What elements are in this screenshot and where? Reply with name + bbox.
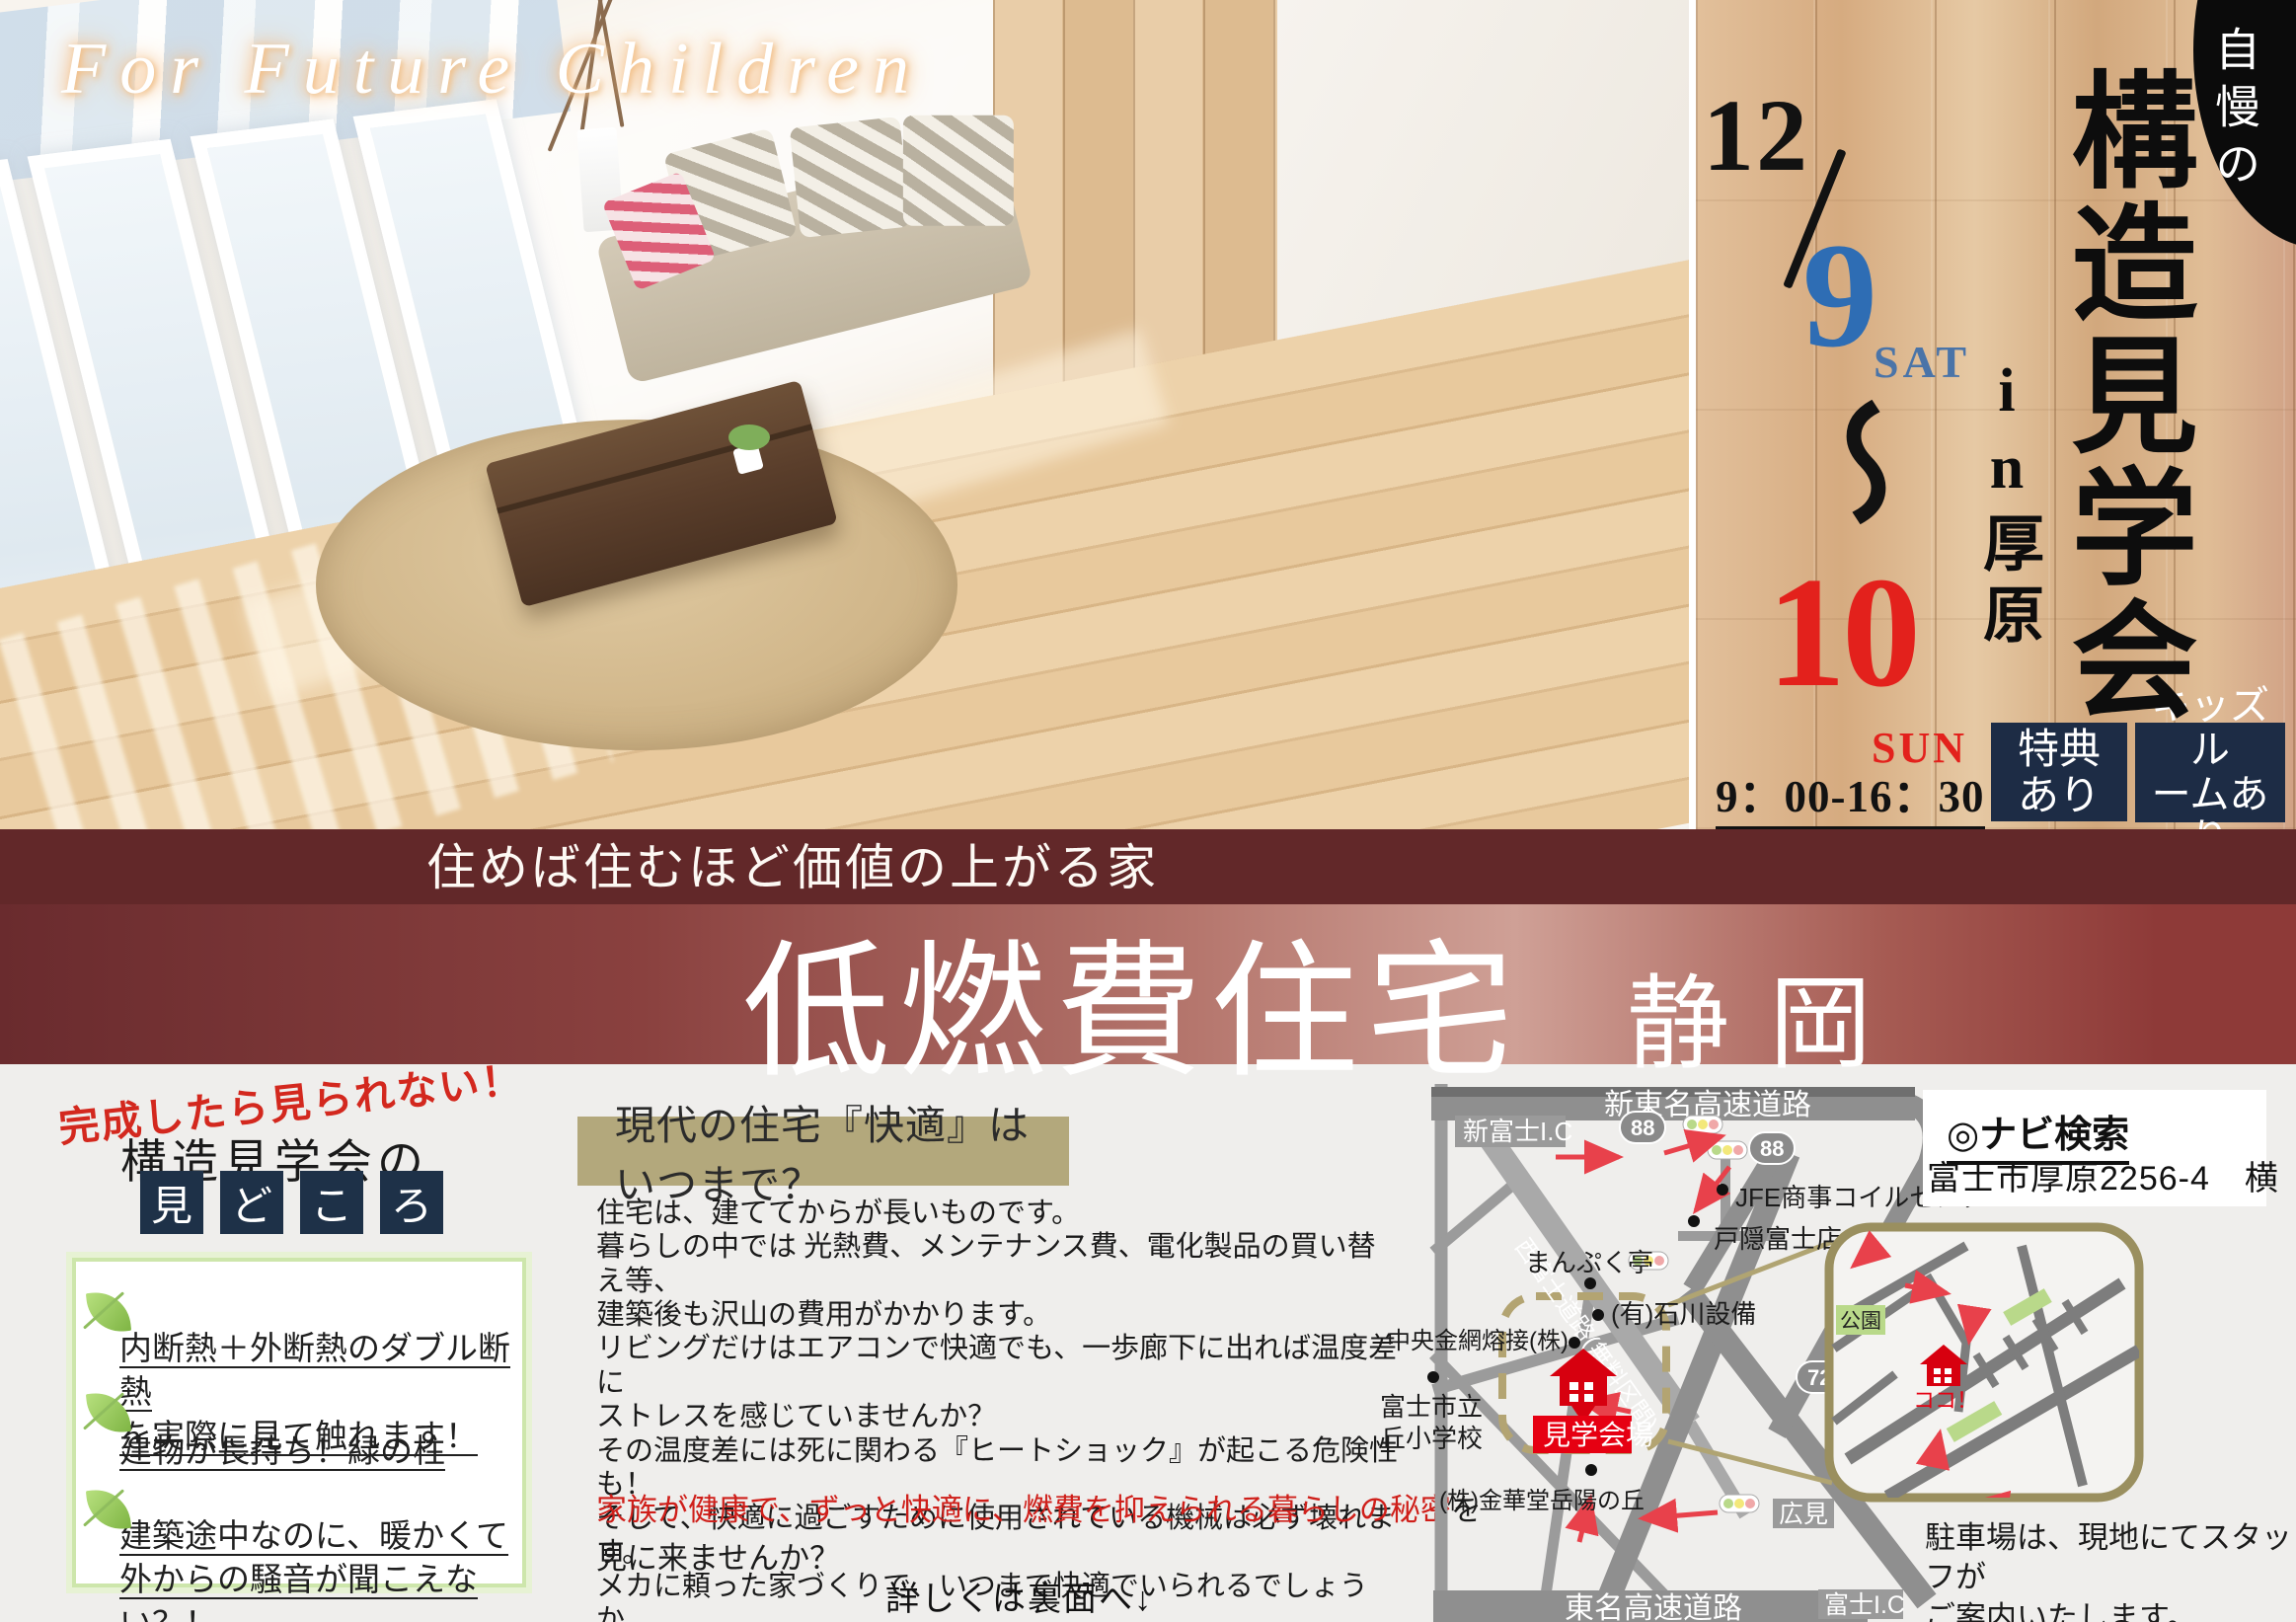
route-88-shield: 88 <box>1631 1116 1654 1140</box>
parking-note: 駐車場は、現地にてスタッフが ご案内いたします。 看板を目印にお越しくださいませ… <box>1925 1518 2296 1622</box>
elementary-label-line1: 富士市立 <box>1380 1392 1483 1422</box>
region-title: 静岡 <box>1627 940 1911 1089</box>
checklist-item: 建築途中なのに、暖かくて 外からの騒音が聞こえない？！ <box>119 1471 522 1622</box>
leaf-icon <box>86 1390 131 1435</box>
midokoro-square: ろ <box>380 1171 443 1234</box>
article-heading: 現代の住宅『快適』はいつまで？ <box>577 1117 1069 1186</box>
koko-label: ココ！ <box>1913 1388 1978 1413</box>
inset-map: 公園 ココ！ <box>1829 1227 2139 1508</box>
event-location-vertical: in厚原 <box>1976 357 2037 703</box>
title-banner: 低燃費住宅 静岡 <box>0 904 2296 1064</box>
midokoro-square: 見 <box>140 1171 203 1234</box>
event-day-10: 10 <box>1767 541 1917 724</box>
living-room-photo: For Future Children <box>0 0 1689 829</box>
checklist-item: 建物が長持ち！緑の柱 <box>119 1386 445 1474</box>
hero-overlay-text: For Future Children <box>61 28 923 112</box>
midokoro-square: こ <box>300 1171 363 1234</box>
leaf-icon <box>86 1487 131 1532</box>
hiromi-label: 広見 <box>1779 1501 1828 1528</box>
event-month: 12 <box>1703 77 1809 194</box>
chuokanaami-label: 中央金網熔接(株) <box>1387 1328 1569 1354</box>
event-time: 9：00-16：30 <box>1716 760 1985 830</box>
article-appeal: 家族が健康で、ずっと快適に、燃費を抑えられる暮らしの秘密を <box>596 1491 1482 1530</box>
route-88-shield: 88 <box>1760 1136 1784 1161</box>
midokoro-square: ど <box>220 1171 283 1234</box>
elementary-label-line2: 丘小学校 <box>1380 1424 1483 1453</box>
tomei-road-label: 東名高速道路 <box>1565 1592 1742 1622</box>
fuji-ic-label: 富士I.C <box>1824 1591 1905 1619</box>
ishikawa-label: (有)石川設備 <box>1611 1299 1756 1329</box>
striped-cushion <box>903 116 1014 226</box>
park-label: 公園 <box>1840 1310 1881 1333</box>
nav-search-address: 富士市厚原2256-4 横 <box>1927 1151 2279 1199</box>
appeal-red-text: 家族が健康で、ずっと快適に、燃費を抑えられる暮らしの秘密 <box>596 1493 1451 1527</box>
midokoro-squares: 見 ど こ ろ <box>140 1171 443 1234</box>
article-appeal-line2: 見に来ませんか？ <box>596 1533 840 1578</box>
highlight-checklist: 内断熱＋外断熱のダブル断熱 を実際に見て触れます！ 建物が長持ち！緑の柱 建築途… <box>72 1258 526 1587</box>
manpukutei-label: まんぷく亭 <box>1525 1248 1653 1277</box>
event-day-9: 9 <box>1802 209 1877 381</box>
event-title-vertical: 構造見学会 <box>2059 65 2185 746</box>
togakushi-label: 戸隠富士店 <box>1714 1224 1842 1254</box>
shinfuji-ic-label: 新富士I.C <box>1463 1117 1572 1146</box>
striped-cushion <box>790 116 911 238</box>
boast-text: 自慢の <box>2211 26 2257 203</box>
date-range-mark: 〜 <box>1789 397 1919 527</box>
venue-label: 見学会場 <box>1543 1420 1653 1450</box>
flyer-canvas: For Future Children 12 9 SAT 〜 10 SUN 9：… <box>0 0 2296 1622</box>
small-plant <box>728 425 770 450</box>
leaf-icon <box>86 1289 131 1335</box>
more-info-link: 詳しくは裏面へ↓ <box>885 1572 1153 1622</box>
event-day-9-weekday: SAT <box>1874 336 1970 388</box>
kinkado-label: (株)金華堂岳陽の丘 <box>1439 1488 1645 1514</box>
